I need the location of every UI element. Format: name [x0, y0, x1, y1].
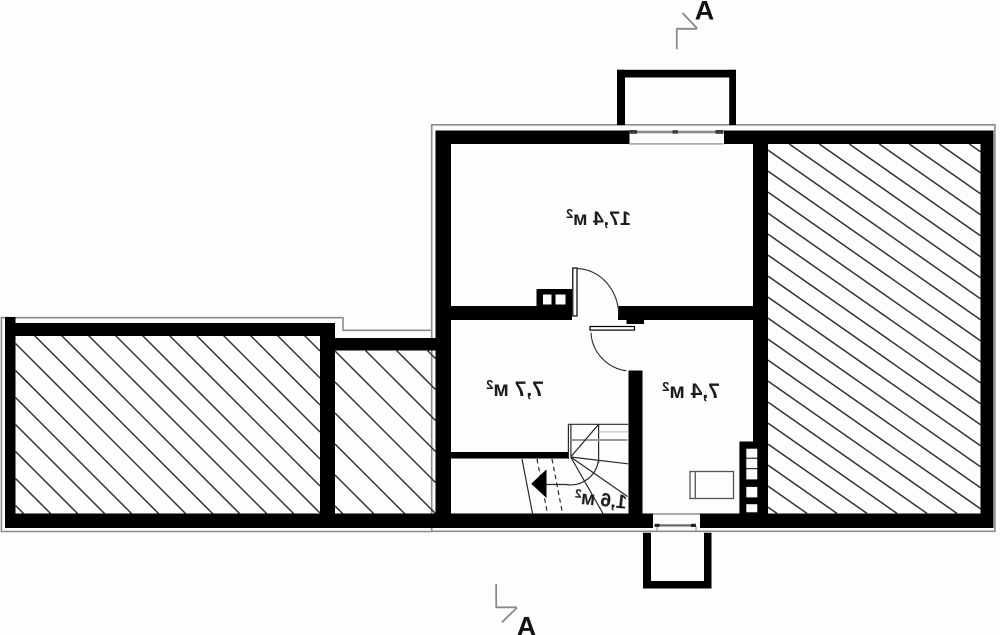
- svg-text:A: A: [517, 611, 537, 635]
- svg-text:7,4 м2: 7,4 м2: [662, 379, 720, 403]
- svg-text:17,4 м2: 17,4 м2: [566, 207, 631, 230]
- svg-text:7,7 м2: 7,7 м2: [486, 377, 544, 401]
- svg-text:A: A: [695, 0, 715, 26]
